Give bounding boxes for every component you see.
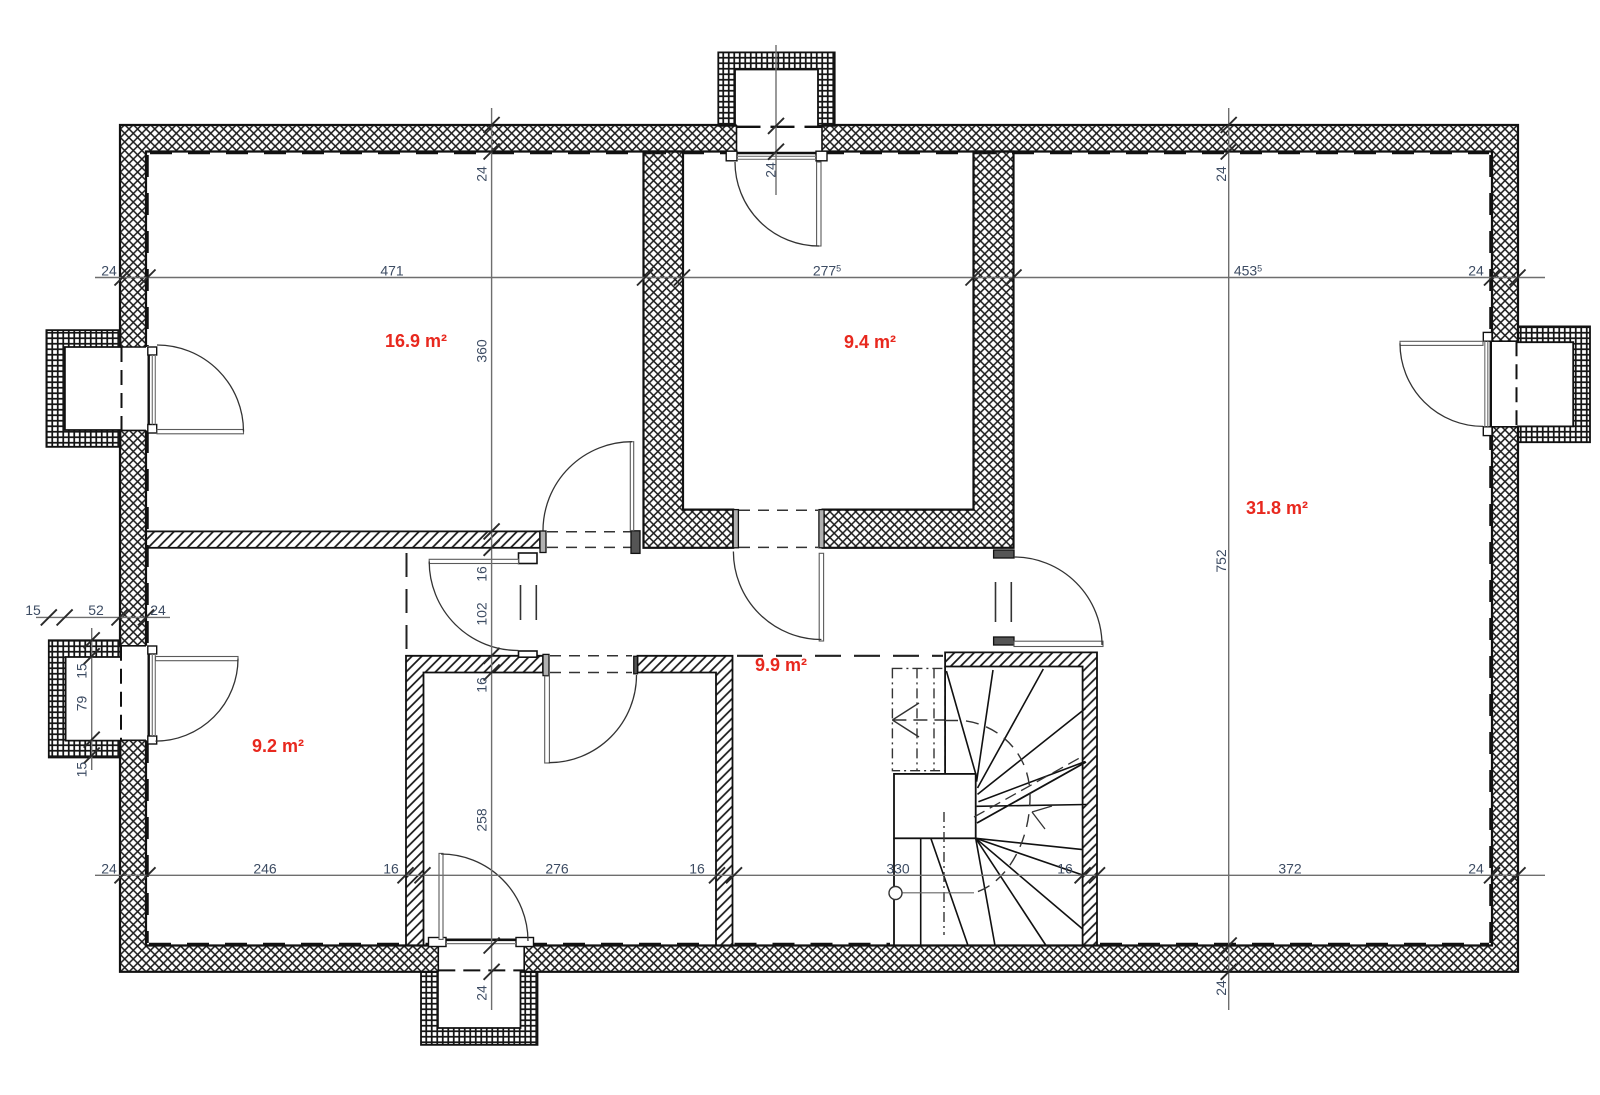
svg-text:16: 16 (689, 861, 705, 877)
svg-text:16: 16 (474, 677, 490, 693)
svg-text:330: 330 (886, 861, 910, 877)
svg-text:16: 16 (1057, 861, 1073, 877)
svg-text:31.8 m²: 31.8 m² (1246, 498, 1308, 518)
svg-text:24: 24 (101, 861, 117, 877)
svg-text:9.9 m²: 9.9 m² (755, 655, 807, 675)
svg-text:24: 24 (474, 985, 490, 1001)
svg-text:471: 471 (380, 263, 404, 279)
svg-text:360: 360 (474, 339, 490, 363)
svg-text:15: 15 (74, 762, 90, 778)
svg-text:24: 24 (1213, 980, 1229, 996)
svg-text:24: 24 (1468, 861, 1484, 877)
svg-text:9.2 m²: 9.2 m² (252, 736, 304, 756)
svg-text:16.9 m²: 16.9 m² (385, 331, 447, 351)
svg-text:16: 16 (474, 566, 490, 582)
svg-text:15: 15 (25, 602, 41, 618)
svg-text:24: 24 (763, 162, 779, 178)
svg-text:258: 258 (474, 808, 490, 832)
svg-text:79: 79 (74, 696, 90, 712)
svg-text:752: 752 (1213, 549, 1229, 573)
svg-text:24: 24 (474, 166, 490, 182)
svg-text:246: 246 (253, 861, 277, 877)
svg-text:52: 52 (88, 602, 104, 618)
svg-text:372: 372 (1278, 861, 1302, 877)
svg-text:102: 102 (474, 602, 490, 626)
svg-text:276: 276 (545, 861, 569, 877)
svg-text:16: 16 (383, 861, 399, 877)
svg-text:24: 24 (150, 602, 166, 618)
svg-text:9.4 m²: 9.4 m² (844, 332, 896, 352)
svg-text:24: 24 (101, 263, 117, 279)
svg-text:24: 24 (1468, 263, 1484, 279)
svg-text:24: 24 (1213, 166, 1229, 182)
svg-text:15: 15 (74, 663, 90, 679)
